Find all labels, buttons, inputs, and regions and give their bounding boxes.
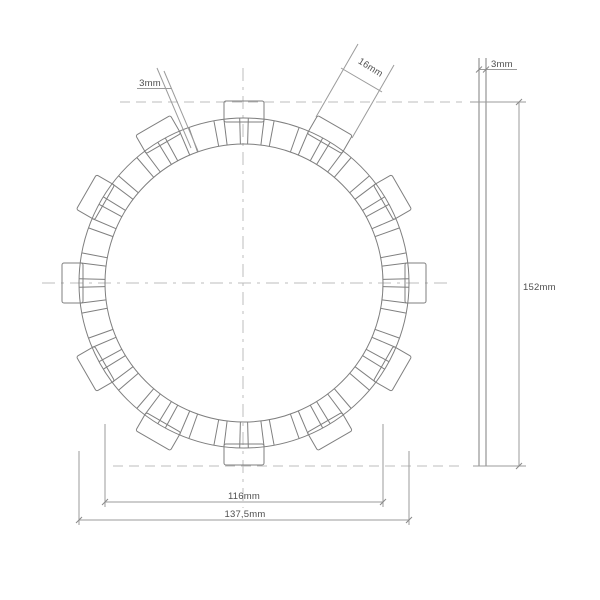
pad-divider-line bbox=[269, 420, 274, 446]
pad-divider-line bbox=[92, 337, 116, 347]
pad-divider-line bbox=[381, 253, 407, 258]
pad-divider-line bbox=[89, 228, 114, 237]
pad-divider-line bbox=[80, 300, 106, 303]
pad-divider-line bbox=[382, 263, 408, 266]
pad-divider-line bbox=[261, 119, 264, 145]
side-view-plate bbox=[473, 58, 492, 466]
dim-outer-diameter-label: 137,5mm bbox=[224, 509, 265, 520]
pad-divider-line bbox=[269, 121, 274, 147]
drawing-canvas: 3mm 16mm 3mm 152mm 116mm bbox=[0, 0, 600, 600]
pad-divider-line bbox=[298, 411, 308, 435]
pad-divider-line bbox=[261, 421, 264, 447]
drive-tab bbox=[76, 175, 114, 220]
dim-tab-width: 16mm bbox=[316, 44, 394, 138]
pad-divider-line bbox=[180, 411, 190, 435]
dim-thickness: 3mm bbox=[476, 59, 517, 73]
dim-overall-diameter: 152mm bbox=[470, 99, 556, 469]
dim-thickness-label: 3mm bbox=[491, 59, 513, 70]
clutch-disc-drawing: 3mm 16mm 3mm 152mm 116mm bbox=[0, 0, 600, 600]
drive-tab bbox=[373, 346, 411, 391]
pad-divider-line bbox=[372, 219, 396, 229]
drive-tab bbox=[307, 115, 352, 153]
pad-divider-line bbox=[82, 253, 108, 258]
pad-divider-line bbox=[298, 131, 308, 155]
pad-divider-line bbox=[214, 420, 219, 446]
pad-divider-line bbox=[381, 308, 407, 313]
dim-outer-diameter: 137,5mm bbox=[76, 451, 412, 525]
drive-tab bbox=[136, 412, 181, 450]
groove-extension-line-1 bbox=[157, 68, 191, 148]
dim-tab-width-label: 16mm bbox=[356, 56, 385, 80]
dim-inner-diameter-label: 116mm bbox=[228, 491, 260, 502]
pad-divider-line bbox=[290, 414, 299, 439]
drive-tab bbox=[136, 115, 181, 153]
pad-divider-line bbox=[189, 414, 198, 439]
pad-divider-line bbox=[372, 337, 396, 347]
drive-tab bbox=[307, 412, 352, 450]
drive-tab bbox=[76, 346, 114, 391]
drive-tab bbox=[373, 175, 411, 220]
pad-divider-line bbox=[214, 121, 219, 147]
tab-extension-line-1 bbox=[316, 44, 358, 117]
pad-divider-line bbox=[290, 128, 299, 153]
pad-divider-line bbox=[224, 421, 227, 447]
groove-extension-line-2 bbox=[164, 71, 198, 151]
pad-divider-line bbox=[89, 329, 114, 338]
pad-divider-line bbox=[375, 228, 400, 237]
pad-divider-line bbox=[180, 131, 190, 155]
pad-divider-line bbox=[82, 308, 108, 313]
dim-groove-width-label: 3mm bbox=[139, 78, 161, 89]
pad-divider-line bbox=[80, 263, 106, 266]
pad-divider-line bbox=[224, 119, 227, 145]
dim-overall-diameter-label: 152mm bbox=[523, 282, 556, 293]
pad-divider-line bbox=[382, 300, 408, 303]
pad-divider-line bbox=[375, 329, 400, 338]
dim-groove-width: 3mm bbox=[137, 68, 198, 151]
pad-divider-line bbox=[92, 219, 116, 229]
